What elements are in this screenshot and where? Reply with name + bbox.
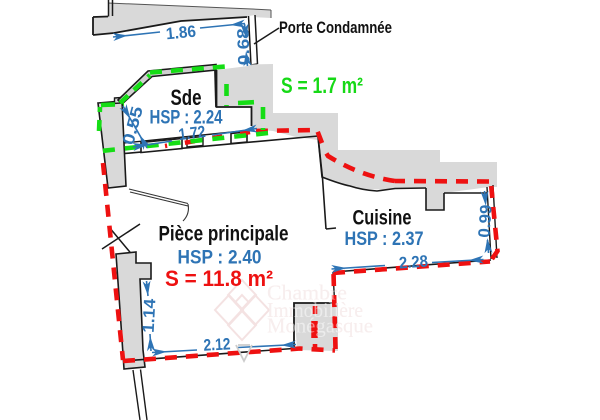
svg-text:Porte Condamnée: Porte Condamnée	[279, 18, 392, 37]
svg-text:S = 11.8 m²: S = 11.8 m²	[165, 266, 273, 291]
svg-text:0.99: 0.99	[475, 204, 495, 238]
svg-text:Monégasque: Monégasque	[267, 314, 373, 338]
svg-text:2.12: 2.12	[203, 335, 231, 354]
svg-text:S = 1.7 m²: S = 1.7 m²	[281, 73, 363, 98]
svg-text:1.14: 1.14	[140, 297, 160, 333]
svg-text:Cuisine: Cuisine	[353, 207, 412, 230]
svg-text:HSP : 2.24: HSP : 2.24	[150, 108, 223, 129]
svg-text:Pièce principale: Pièce principale	[159, 223, 289, 246]
svg-text:HSP : 2.37: HSP : 2.37	[345, 229, 424, 250]
svg-text:2.28: 2.28	[398, 253, 428, 273]
svg-text:1.86: 1.86	[165, 23, 197, 44]
svg-text:Sde: Sde	[171, 85, 202, 110]
svg-text:0.68: 0.68	[234, 28, 253, 66]
